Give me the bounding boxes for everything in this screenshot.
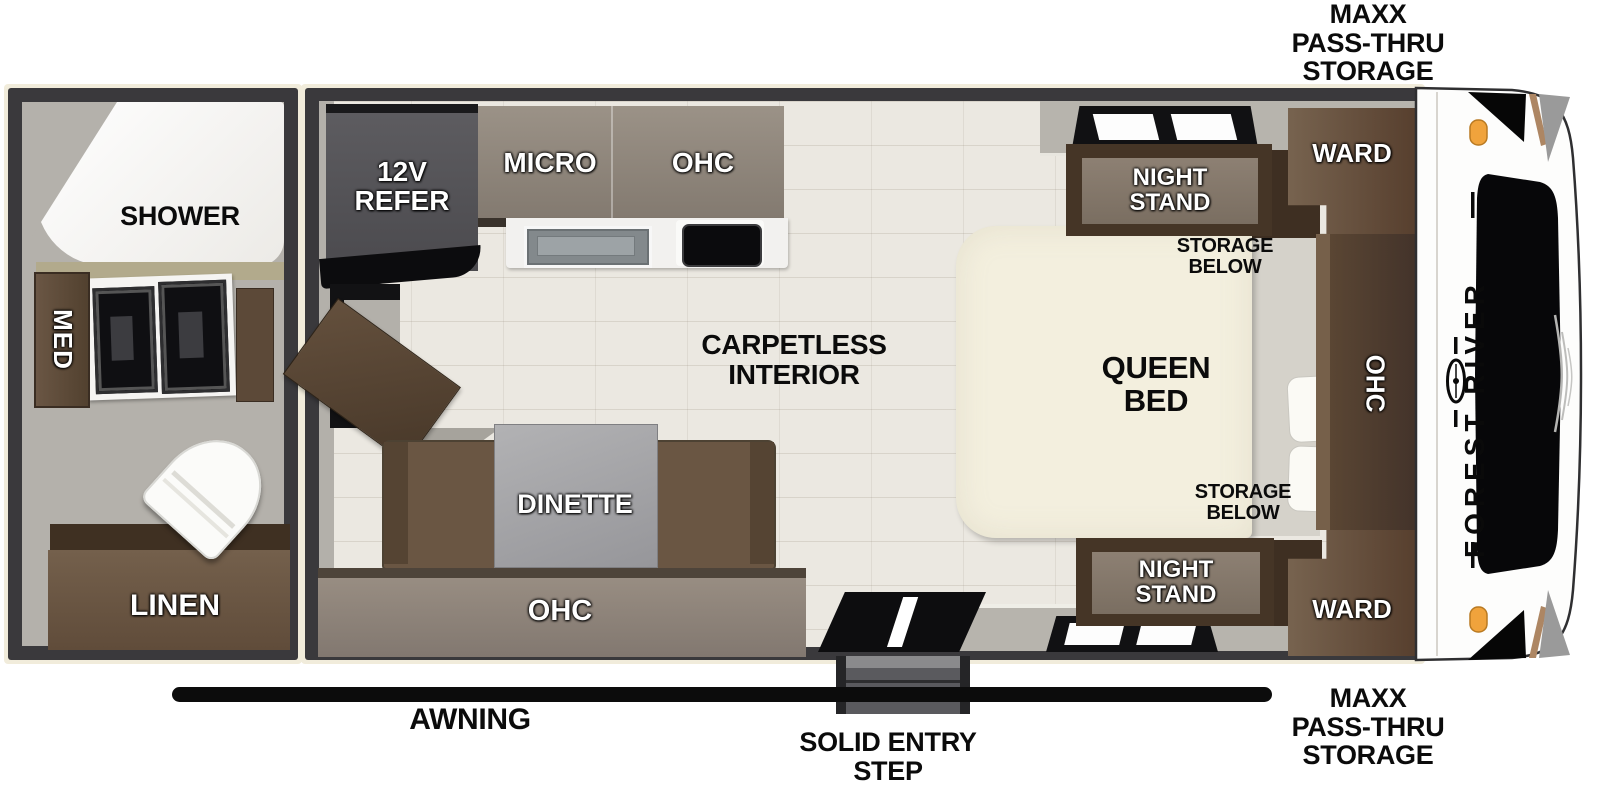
brand-dash-bottom (1471, 542, 1475, 568)
bench-arm (750, 442, 774, 564)
linen-label: LINEN (75, 590, 275, 621)
bedroom-ohc-label: OHC (1361, 355, 1388, 413)
kitchen-sink (524, 226, 652, 268)
bedroom-front-window (1072, 106, 1258, 148)
crest-dash-bottom (1454, 410, 1458, 427)
carpetless-interior-label: CARPETLESS INTERIOR (654, 330, 934, 389)
brand-dash-top (1471, 192, 1475, 218)
kitchen-ohc-label: OHC (636, 148, 770, 177)
awning-bar (172, 687, 1272, 702)
storage-below-bottom-label: STORAGE BELOW (1153, 482, 1333, 524)
dinette-bench-right (654, 440, 776, 570)
bathroom-sink-right (158, 280, 230, 394)
window-pane (1171, 114, 1237, 140)
entry-step-label: SOLID ENTRY STEP (788, 728, 988, 785)
queen-bed-label: QUEEN BED (1056, 352, 1256, 418)
wardrobe-bottom-label: WARD (1288, 596, 1416, 623)
dinette-ohc-label: OHC (480, 596, 640, 626)
sink-basin (110, 316, 134, 361)
sink-inner (537, 236, 635, 256)
bench-arm (384, 442, 408, 564)
storage-below-top-label: STORAGE BELOW (1135, 236, 1315, 278)
crest-dash-top (1454, 337, 1458, 354)
bath-cabinet-right (236, 288, 274, 402)
brand-text: FOREST RIVER (1459, 279, 1490, 558)
maxx-storage-bottom-label: MAXX PASS-THRU STORAGE (1263, 684, 1473, 770)
window-pane (1136, 623, 1196, 645)
med-label: MED (48, 310, 75, 371)
entry-door (818, 592, 986, 652)
refrigerator: 12V REFER (326, 104, 478, 271)
sink-basin (178, 312, 204, 359)
maxx-storage-top-label: MAXX PASS-THRU STORAGE (1263, 0, 1473, 86)
door-glass-slit (887, 597, 918, 647)
shower-label: SHOWER (80, 202, 280, 231)
stove (682, 224, 762, 267)
step-tread-line (846, 680, 960, 683)
med-cabinet: MED (34, 272, 90, 408)
dinette-bench-left (382, 440, 500, 570)
bathroom-sink-left (92, 286, 158, 394)
dinette-label: DINETTE (494, 490, 656, 518)
step-tread (846, 656, 960, 668)
window-pane (1093, 114, 1159, 140)
marker-light-bottom (1470, 607, 1487, 632)
refer-label: 12V REFER (326, 157, 478, 215)
awning-label: AWNING (370, 704, 570, 736)
vanity-counter (84, 273, 236, 400)
entry-step (836, 656, 970, 714)
linen-cabinet-top (50, 524, 290, 552)
nightstand-bottom-label: NIGHT STAND (1092, 558, 1260, 608)
wardrobe-top-label: WARD (1288, 140, 1416, 167)
micro-label: MICRO (488, 148, 612, 177)
window-pane (1064, 623, 1124, 645)
toilet-seat-line (171, 470, 235, 529)
nightstand-top-label: NIGHT STAND (1082, 166, 1258, 216)
floorplan-canvas: SHOWER MED LINEN 12V REFER MICRO OHC (0, 0, 1600, 788)
front-cap: FOREST RIVER (1400, 80, 1600, 668)
marker-light-top (1470, 120, 1487, 145)
